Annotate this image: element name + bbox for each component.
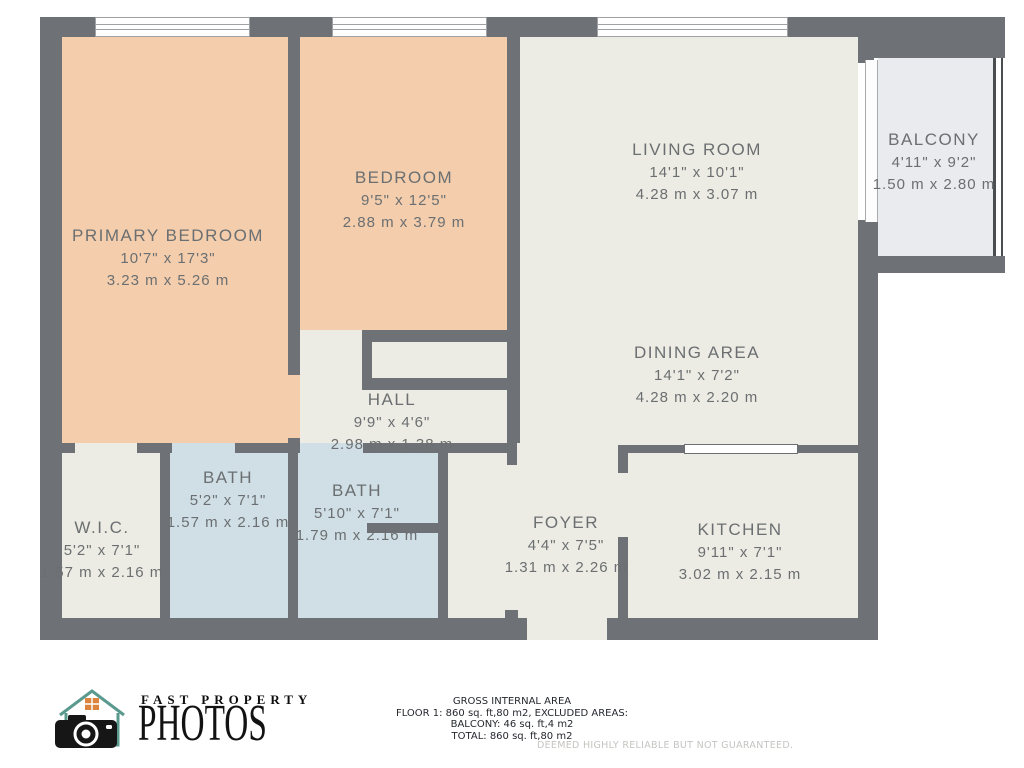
- entry-door-opening: [527, 618, 607, 640]
- room-dims-m: 1.57 m x 2.16 m: [41, 564, 164, 581]
- room-name: BALCONY: [873, 130, 996, 149]
- room-label-wic: W.I.C. 5'2" x 7'1" 1.57 m x 2.16 m: [41, 518, 164, 581]
- room-dims-m: 1.79 m x 2.16 m: [296, 527, 419, 544]
- room-label-living-room: LIVING ROOM 14'1" x 10'1" 4.28 m x 3.07 …: [632, 140, 762, 203]
- room-dims-ft: 5'2" x 7'1": [41, 542, 164, 559]
- room-dims-m: 3.23 m x 5.26 m: [72, 272, 264, 289]
- room-dims-ft: 5'2" x 7'1": [167, 492, 290, 509]
- wall-primary-right-upper: [288, 330, 300, 375]
- room-label-bath-2: BATH 5'10" x 7'1" 1.79 m x 2.16 m: [296, 481, 419, 544]
- brand-name-line2: PHOTOS: [138, 699, 267, 749]
- summary-floor1: FLOOR 1: 860 sq. ft,80 m2, EXCLUDED AREA…: [300, 708, 724, 720]
- disclaimer-text: DEEMED HIGHLY RELIABLE BUT NOT GUARANTEE…: [537, 740, 793, 751]
- room-dims-ft: 5'10" x 7'1": [296, 505, 419, 522]
- room-dims-ft: 4'4" x 7'5": [505, 537, 628, 554]
- room-dims-m: 4.28 m x 2.20 m: [634, 389, 760, 406]
- room-dims-m: 4.28 m x 3.07 m: [632, 186, 762, 203]
- room-name: FOYER: [505, 513, 628, 532]
- room-name: LIVING ROOM: [632, 140, 762, 159]
- room-label-bath-1: BATH 5'2" x 7'1" 1.57 m x 2.16 m: [167, 468, 290, 531]
- wall-row-segment-b: [137, 443, 172, 453]
- room-label-hall: HALL 9'9" x 4'6" 2.98 m x 1.38 m: [331, 390, 454, 453]
- room-dims-m: 2.88 m x 3.79 m: [343, 214, 466, 231]
- floor-plan-page: PRIMARY BEDROOM 10'7" x 17'3" 3.23 m x 5…: [0, 0, 1024, 768]
- wall-bedrooms-divider: [288, 37, 300, 330]
- wall-foyer-left-top-stub: [507, 443, 517, 465]
- room-name: BATH: [167, 468, 290, 487]
- room-dims-m: 1.50 m x 2.80 m: [873, 176, 996, 193]
- room-dims-ft: 9'11" x 7'1": [679, 544, 802, 561]
- room-name: HALL: [331, 390, 454, 409]
- window-kitchen-passthrough: [684, 444, 798, 454]
- room-name: DINING AREA: [634, 343, 760, 362]
- room-name: W.I.C.: [41, 518, 164, 537]
- room-name: KITCHEN: [679, 520, 802, 539]
- summary-balcony: BALCONY: 46 sq. ft,4 m2: [300, 719, 724, 731]
- wall-balcony-top: [858, 17, 1005, 58]
- window-living-room: [597, 17, 788, 37]
- room-dims-ft: 10'7" x 17'3": [72, 250, 264, 267]
- wall-exterior-bottom-right: [607, 618, 878, 640]
- room-dims-m: 2.98 m x 1.38 m: [331, 436, 454, 453]
- window-bedroom: [332, 17, 487, 37]
- wall-exterior-right: [858, 220, 878, 640]
- room-label-kitchen: KITCHEN 9'11" x 7'1" 3.02 m x 2.15 m: [679, 520, 802, 583]
- room-dims-ft: 14'1" x 7'2": [634, 367, 760, 384]
- room-dims-m: 1.57 m x 2.16 m: [167, 514, 290, 531]
- wall-closet-top: [367, 330, 520, 342]
- room-name: BATH: [296, 481, 419, 500]
- window-primary-bedroom: [95, 17, 250, 37]
- room-dims-ft: 14'1" x 10'1": [632, 164, 762, 181]
- room-dims-m: 3.02 m x 2.15 m: [679, 566, 802, 583]
- wall-foyer-left-bottom-stub: [505, 610, 518, 620]
- wall-balcony-bottom: [878, 256, 1005, 273]
- room-name: PRIMARY BEDROOM: [72, 226, 264, 245]
- room-label-bedroom: BEDROOM 9'5" x 12'5" 2.88 m x 3.79 m: [343, 168, 466, 231]
- room-name: BEDROOM: [343, 168, 466, 187]
- room-label-balcony: BALCONY 4'11" x 9'2" 1.50 m x 2.80 m: [873, 130, 996, 193]
- wall-closet-bottom: [362, 378, 520, 390]
- summary-gross-internal-area: GROSS INTERNAL AREA: [300, 696, 724, 708]
- room-label-foyer: FOYER 4'4" x 7'5" 1.31 m x 2.26 m: [505, 513, 628, 576]
- room-dims-ft: 9'9" x 4'6": [331, 414, 454, 431]
- wall-exterior-bottom-left: [40, 618, 527, 640]
- wall-living-divider: [507, 37, 520, 443]
- room-label-dining-area: DINING AREA 14'1" x 7'2" 4.28 m x 2.20 m: [634, 343, 760, 406]
- room-dims-m: 1.31 m x 2.26 m: [505, 559, 628, 576]
- room-dims-ft: 9'5" x 12'5": [343, 192, 466, 209]
- room-label-primary-bedroom: PRIMARY BEDROOM 10'7" x 17'3" 3.23 m x 5…: [72, 226, 264, 289]
- area-summary: GROSS INTERNAL AREA FLOOR 1: 860 sq. ft,…: [300, 696, 724, 742]
- fast-property-photos-logo-icon: [52, 687, 142, 751]
- room-dims-ft: 4'11" x 9'2": [873, 154, 996, 171]
- wall-bath2-right: [438, 447, 448, 620]
- balcony-railing-outer: [1001, 58, 1003, 256]
- wall-row-segment-a: [62, 443, 75, 453]
